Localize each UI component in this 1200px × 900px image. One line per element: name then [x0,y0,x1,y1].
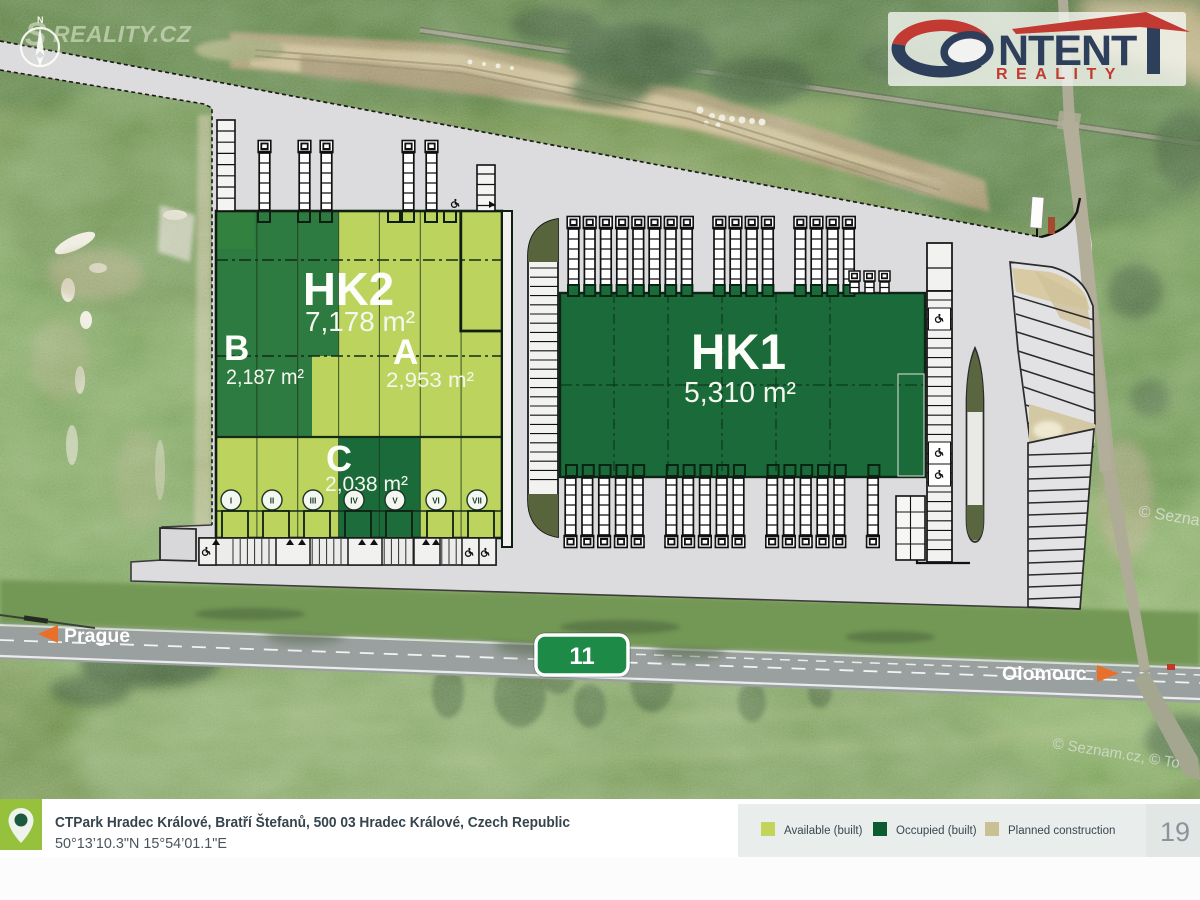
svg-text:B: B [224,329,249,368]
svg-text:I: I [230,497,232,506]
svg-text:Occupied (built): Occupied (built) [896,825,977,837]
svg-text:IV: IV [350,497,358,506]
svg-text:CTPark Hradec Králové, Bratří: CTPark Hradec Králové, Bratří Štefanů, 5… [55,813,570,831]
svg-text:50°13’10.3"N 15°54’01.1"E: 50°13’10.3"N 15°54’01.1"E [55,835,227,852]
svg-text:VI: VI [432,497,440,506]
svg-text:Olomouc: Olomouc [1002,663,1087,685]
svg-text:V: V [392,497,398,506]
svg-text:VII: VII [472,497,482,506]
svg-text:III: III [310,497,317,506]
svg-text:19: 19 [1160,817,1190,847]
svg-text:A: A [393,333,418,372]
svg-text:2,953 m²: 2,953 m² [386,369,474,392]
svg-text:REALITY: REALITY [996,66,1124,83]
svg-text:II: II [270,497,274,506]
svg-text:REALITY.CZ: REALITY.CZ [53,21,192,47]
svg-text:11: 11 [569,643,594,670]
svg-text:Planned construction: Planned construction [1008,825,1115,837]
svg-text:HK1: HK1 [691,324,786,380]
svg-text:Available (built): Available (built) [784,825,863,837]
svg-text:Prague: Prague [64,625,130,647]
svg-text:N: N [37,15,44,25]
svg-text:2,187 m²: 2,187 m² [226,366,304,389]
svg-text:5,310 m²: 5,310 m² [684,377,796,409]
